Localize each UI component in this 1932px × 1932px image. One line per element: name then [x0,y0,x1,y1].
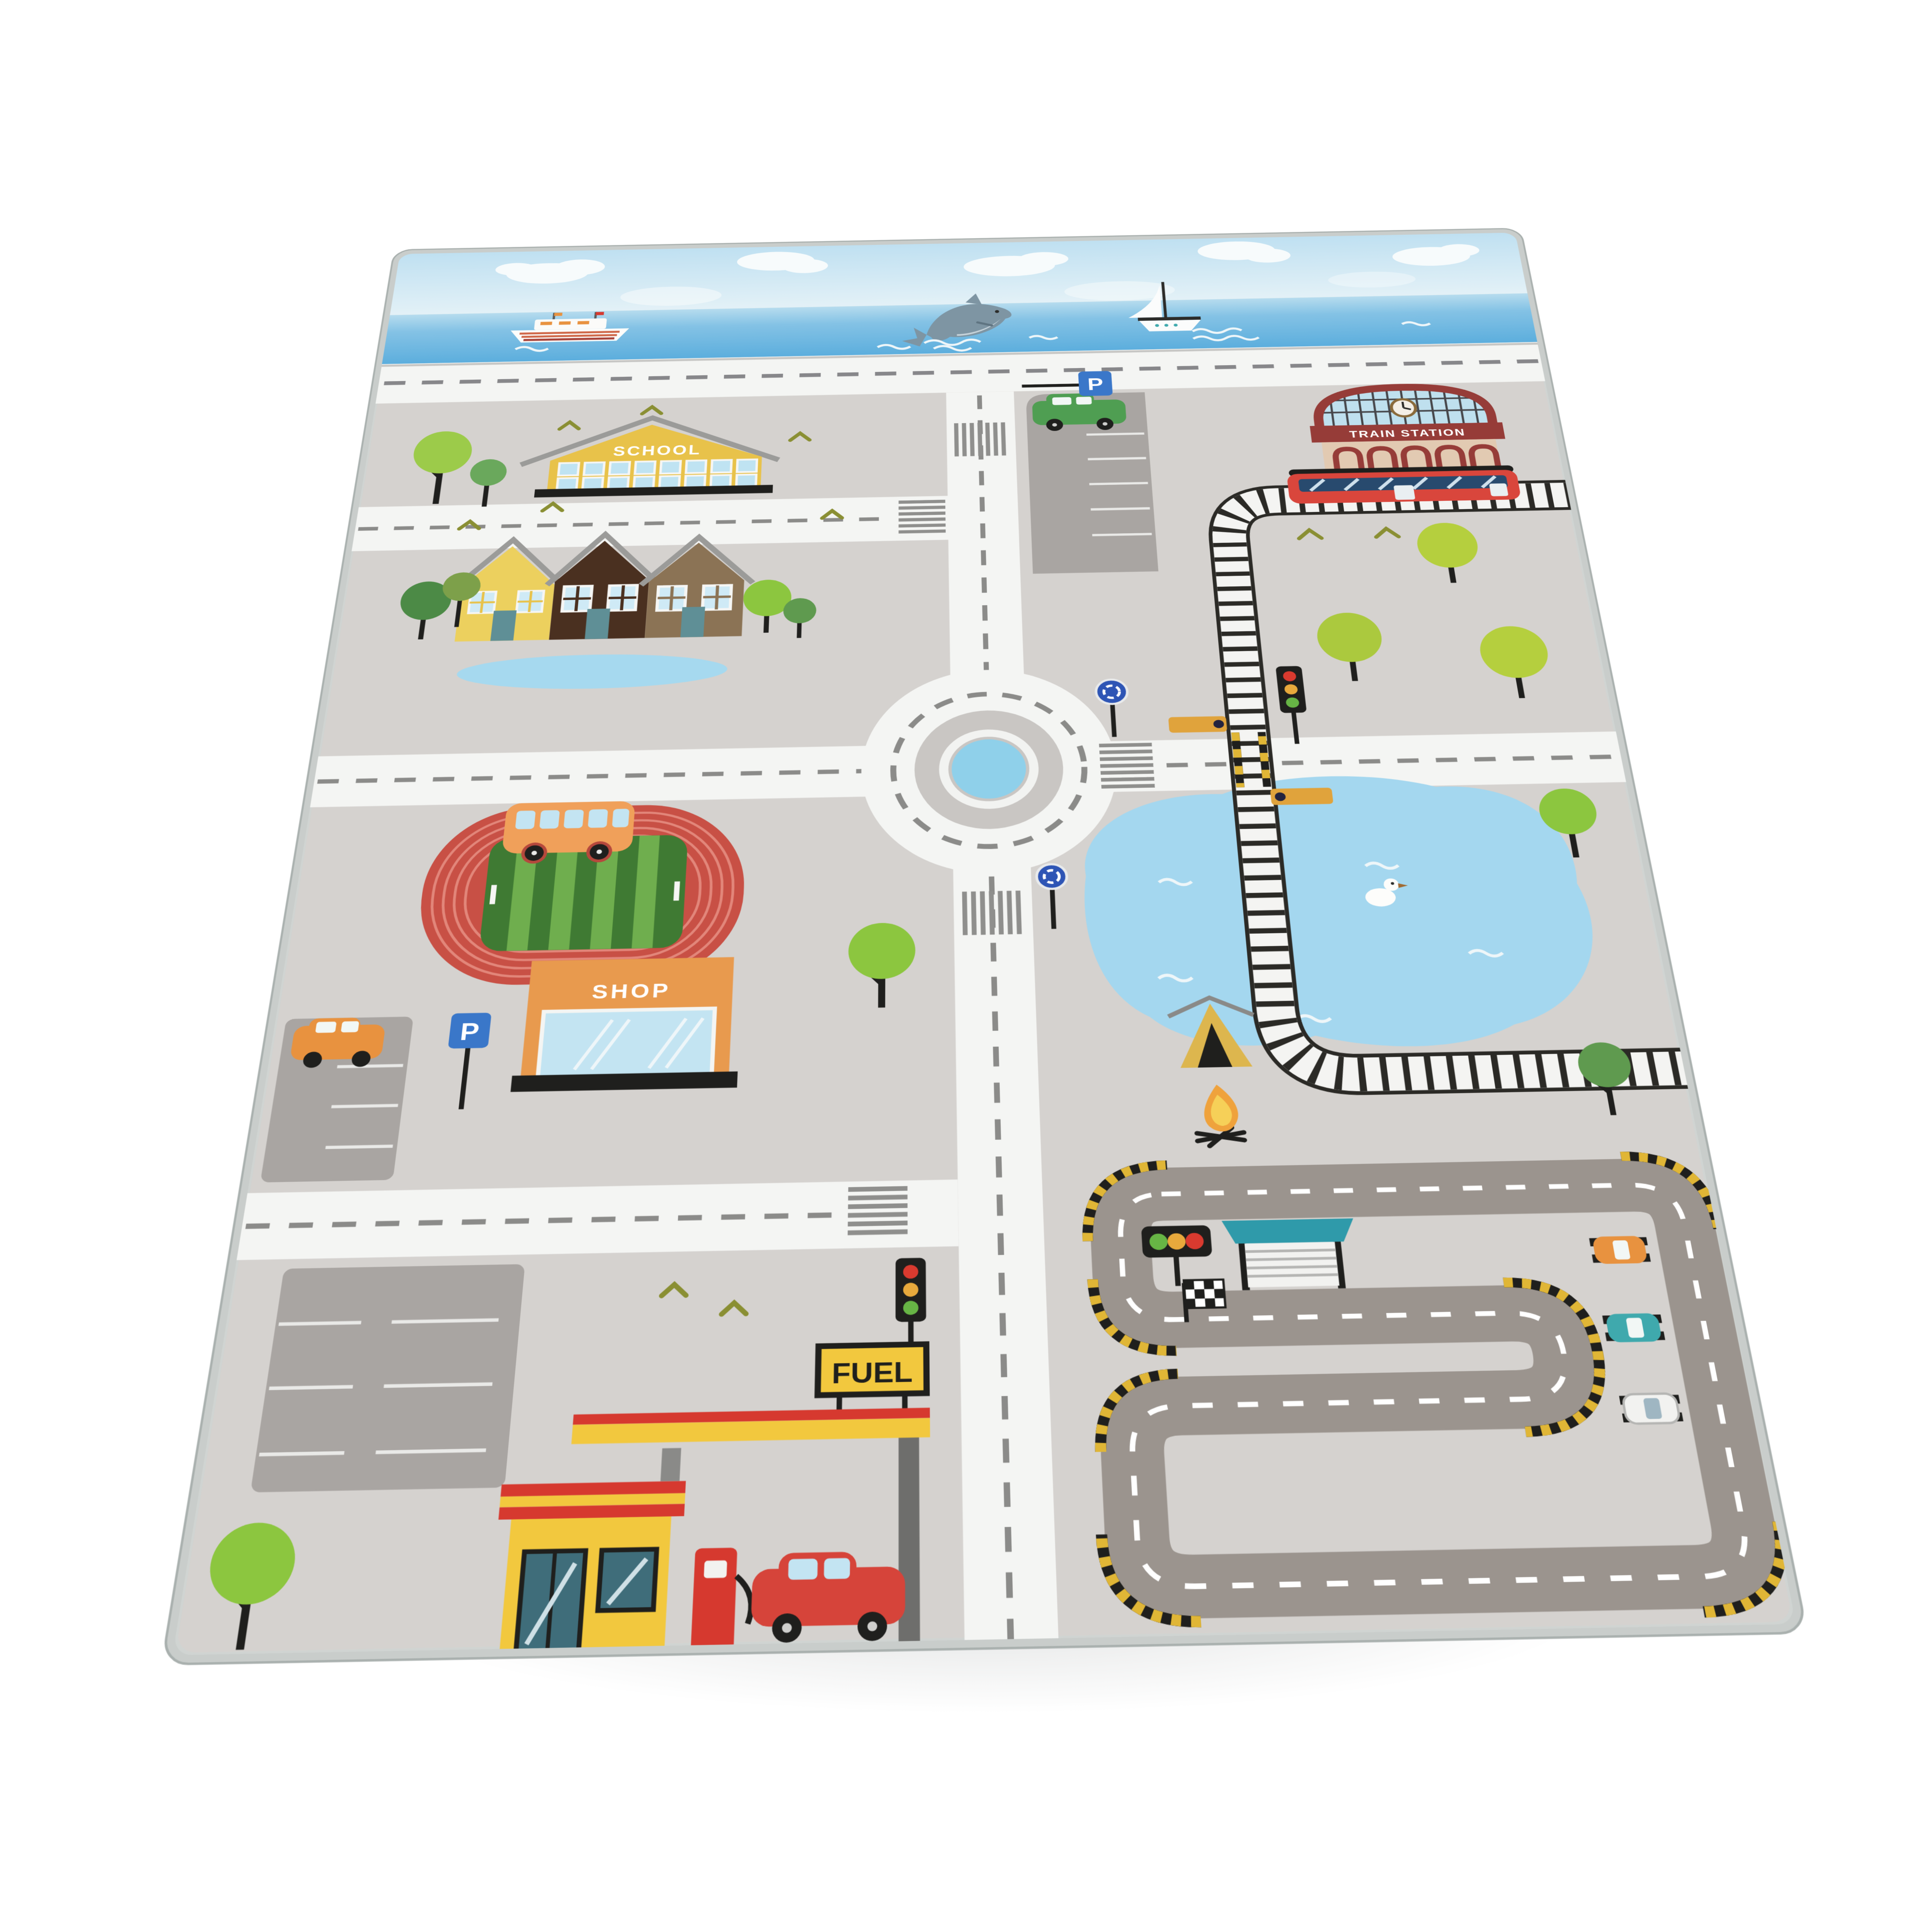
shop-window [538,1009,715,1078]
race-car [1589,1236,1651,1264]
play-rug: P SCHOOL [158,227,1811,1667]
zebra-crossing [956,422,1004,456]
race-car [1619,1393,1684,1424]
parking-sign-label: P [459,1018,481,1045]
parking-lot-bottom [250,1264,525,1492]
train-station-label: TRAIN STATION [1349,427,1466,440]
train [1286,465,1521,504]
parking-sign: P [1078,371,1113,396]
station-clock [1390,399,1417,416]
school-label: SCHOOL [612,443,702,459]
race-garage [1222,1219,1361,1291]
lake [1079,772,1614,1052]
product-photo-stage: P SCHOOL [0,0,1932,1932]
parking-lot-top: P [1022,370,1159,574]
parking-lot-left [260,1017,413,1182]
zebra-crossing [1099,745,1155,787]
fuel-label: FUEL [832,1356,913,1389]
zebra-crossing [965,891,1020,935]
parking-sign-label: P [1087,374,1104,393]
kiosk-vent [660,1448,681,1481]
shop-label: SHOP [591,980,672,1003]
parking-sign-pole [1022,385,1079,386]
race-car [1602,1313,1665,1343]
shop-building: SHOP [511,957,742,1092]
play-rug-wrapper: P SCHOOL [158,227,1811,1667]
fuel-kiosk [486,1481,686,1658]
